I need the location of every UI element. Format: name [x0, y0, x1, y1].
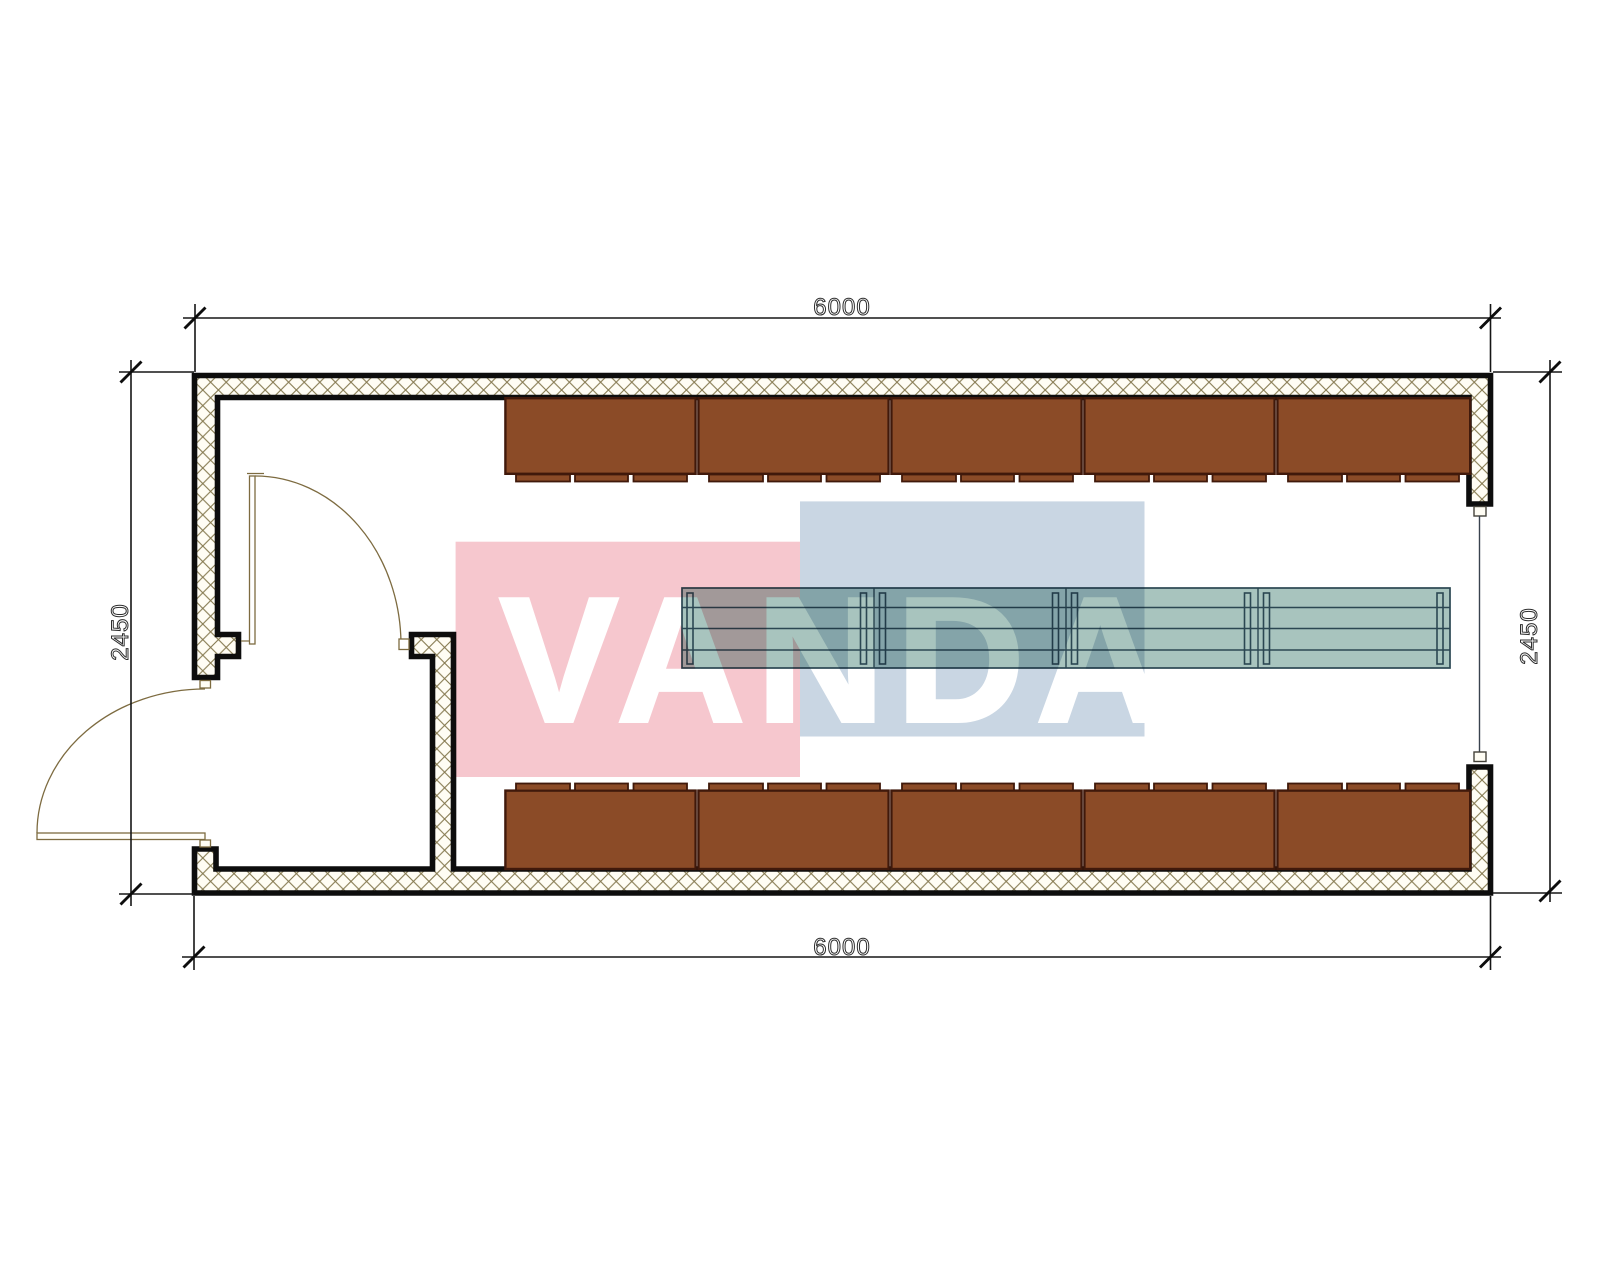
- svg-text:6000: 6000: [813, 294, 870, 321]
- svg-text:2450: 2450: [107, 603, 134, 660]
- svg-text:2450: 2450: [1516, 607, 1543, 664]
- svg-text:6000: 6000: [813, 934, 870, 961]
